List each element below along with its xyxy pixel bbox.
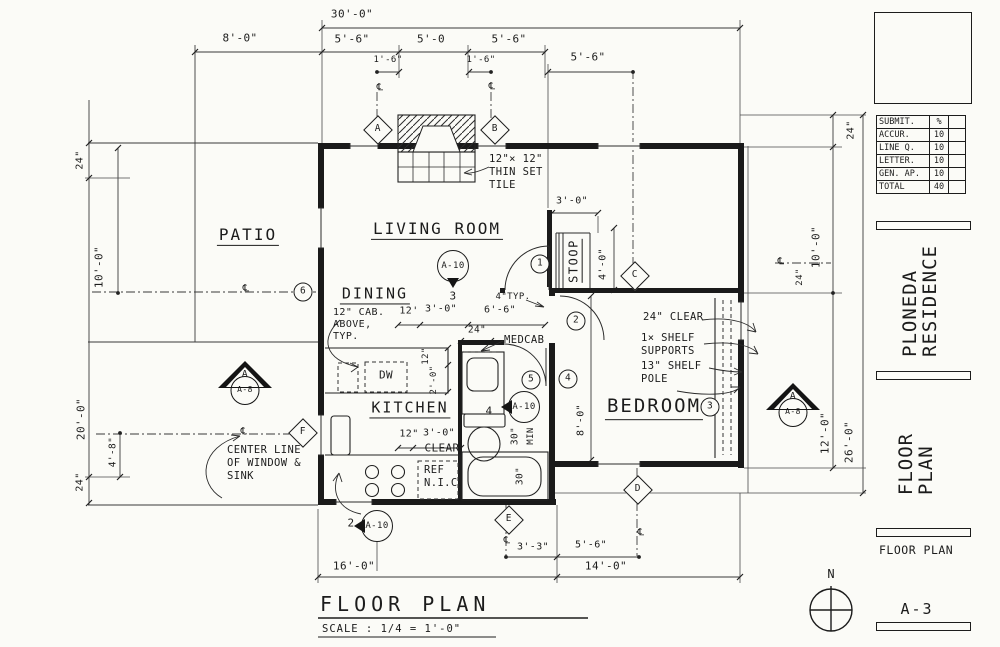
table-row: GEN. AP.10 — [877, 168, 966, 181]
detail-balloon-kitchen: A-10 — [361, 510, 393, 542]
keynote-5: 5 — [522, 371, 541, 390]
balloon-tail-icon — [447, 278, 459, 294]
dim-tub-30: 30" — [516, 467, 527, 485]
room-bedroom: BEDROOM — [605, 396, 703, 420]
section-sheet-ref: A-8 — [785, 407, 801, 416]
project-name: PLONEDA RESIDENCE — [901, 245, 941, 357]
grid-marker-c: C — [620, 261, 650, 291]
grade-label: GEN. AP. — [877, 168, 930, 181]
label-clear: CLEAR — [424, 443, 459, 456]
keynote-6: 6 — [294, 283, 313, 302]
north-label: N — [827, 567, 834, 581]
grade-value: % — [930, 116, 949, 129]
room-stoop: STOOP — [568, 239, 583, 283]
dim-dw-12: 12" — [421, 347, 431, 364]
dim-bottom-16: 16'-0" — [333, 561, 375, 574]
plan-annotations: 30'-0"8'-0"5'-6"5'-05'-6"1'-6"1'-6"5'-6"… — [0, 0, 1000, 647]
balloon-tail-icon — [347, 519, 365, 533]
note-medcab: MEDCAB — [504, 334, 544, 347]
keynote-1: 1 — [531, 255, 550, 274]
dim-win-5-6-a: 5'-6" — [334, 34, 369, 47]
dim-right-12-0: 12'-0" — [820, 412, 833, 454]
section-letter: A — [790, 391, 796, 402]
grid-marker-b: B — [480, 115, 510, 145]
note-4-typ: 4"TYP. — [496, 292, 531, 302]
centerline-sym-6: ℄ — [504, 535, 511, 546]
titleblock-divider — [876, 528, 971, 537]
keynote-2: 2 — [567, 312, 586, 331]
grade-label: ACCUR. — [877, 129, 930, 142]
note-tile: 12"× 12" THIN SET TILE — [489, 153, 543, 191]
dim-right-26-0: 26'-0" — [844, 421, 857, 463]
dim-dw-2-0: 2'-0" — [429, 365, 439, 394]
dim-left-24-bot: 24" — [74, 472, 85, 491]
detail-balloon-bath: A-10 — [508, 391, 540, 423]
grade-label: SUBMIT. — [877, 116, 930, 129]
note-24-clear: 24" CLEAR — [643, 311, 704, 324]
dim-bottom-3-3: 3'-3" — [517, 541, 549, 552]
dim-win-5-6-b: 5'-6" — [491, 34, 526, 47]
grade-value: 10 — [930, 142, 949, 155]
centerline-sym-4: ℄ — [241, 426, 248, 437]
dim-bedroom-8-0: 8'-0" — [575, 404, 586, 436]
dim-stoop-3-0: 3'-0" — [556, 195, 588, 206]
dim-6-6: 6'-6" — [484, 304, 516, 315]
centerline-sym-2: ℄ — [489, 81, 496, 92]
dim-kitchen-3-0: 3'-0" — [423, 427, 455, 438]
balloon-tail-icon — [494, 400, 512, 414]
sheet-label: FLOOR PLAN — [879, 543, 953, 557]
dim-patio-8: 8'-0" — [222, 33, 257, 46]
dim-5-6-c: 5'-6" — [570, 52, 605, 65]
grade-label: TOTAL — [877, 181, 930, 194]
section-letter: A — [242, 369, 248, 380]
label-min: MIN — [526, 427, 536, 444]
dim-right-24-mid: 24" — [795, 268, 805, 285]
dim-1-6-b: 1'-6" — [466, 55, 495, 65]
note-ref-nic: REF N.I.C. — [424, 464, 464, 490]
dim-right-10-0: 10'-0" — [811, 226, 824, 268]
room-kitchen: KITCHEN — [369, 399, 450, 418]
grade-label: LETTER. — [877, 155, 930, 168]
dim-left-4-8: 4'-8" — [109, 437, 120, 468]
dim-bottom-14: 14'-0" — [585, 561, 627, 574]
titleblock-divider — [876, 221, 971, 230]
label-dw: DW — [379, 370, 393, 383]
grade-value: 10 — [930, 168, 949, 181]
table-row: LINE Q.10 — [877, 142, 966, 155]
grid-marker-e: E — [494, 505, 524, 535]
detail-balloon-living: A-10 — [437, 250, 469, 282]
dim-left-24-top: 24" — [74, 150, 85, 169]
table-row: LETTER.10 — [877, 155, 966, 168]
dim-win-5-0: 5'-0 — [417, 34, 445, 47]
drawing-scale: SCALE : 1/4 = 1'-0" — [322, 623, 461, 635]
keynote-4: 4 — [559, 370, 578, 389]
floor-plan-sheet: 30'-0"8'-0"5'-6"5'-05'-6"1'-6"1'-6"5'-6"… — [0, 0, 1000, 647]
grade-value: 10 — [930, 129, 949, 142]
grid-marker-d: D — [623, 475, 653, 505]
section-marker-left: AA-8 — [218, 361, 272, 407]
dim-overall-30: 30'-0" — [331, 9, 373, 22]
sheet-number: A-3 — [900, 600, 933, 618]
note-cab-above: 12" CAB. ABOVE, TYP. — [333, 307, 384, 344]
centerline-sym-3: ℄ — [243, 283, 250, 294]
dim-kitchen-12: 12" — [399, 428, 418, 439]
dim-stoop-4-0: 4'-0" — [597, 248, 608, 280]
dim-dining-3-0: 3'-0" — [425, 303, 457, 314]
note-shelf-pole: 13" SHELF POLE — [641, 360, 702, 386]
dim-bottom-5-6: 5'-6" — [575, 539, 607, 550]
stamp-box — [874, 12, 972, 104]
centerline-sym-1: ℄ — [377, 82, 384, 93]
titleblock-divider — [876, 371, 971, 380]
centerline-sym-7: ℄ — [638, 527, 645, 538]
grid-marker-a: A — [363, 115, 393, 145]
dim-left-20-0: 20'-0" — [76, 398, 89, 440]
room-dining: DINING — [340, 285, 410, 304]
room-living: LIVING ROOM — [371, 220, 503, 240]
dim-left-10-0: 10'-0" — [94, 246, 107, 288]
note-shelf-supports: 1× SHELF SUPPORTS — [641, 332, 695, 358]
centerline-sym-5: ℄ — [778, 256, 785, 267]
note-center-line: CENTER LINE OF WINDOW & SINK — [227, 444, 301, 482]
dim-medcab-24: 24" — [468, 326, 486, 337]
section-sheet-ref: A-8 — [237, 385, 253, 394]
grade-label: LINE Q. — [877, 142, 930, 155]
table-row: SUBMIT.% — [877, 116, 966, 129]
section-marker-right: AA-8 — [766, 383, 820, 429]
grade-value: 40 — [930, 181, 949, 194]
sheet-title-vertical: FLOOR PLAN — [897, 433, 937, 495]
dim-right-24-top: 24" — [845, 120, 856, 139]
dim-1-6-a: 1'-6" — [373, 55, 402, 65]
keynote-3: 3 — [701, 398, 720, 417]
dim-dining-12: 12' — [399, 305, 418, 316]
dim-sink-30: 30" — [511, 427, 522, 445]
drawing-title: FLOOR PLAN — [320, 592, 490, 616]
grade-value: 10 — [930, 155, 949, 168]
detail-num-4: 4 — [485, 406, 492, 419]
table-row: TOTAL40 — [877, 181, 966, 194]
grade-table: SUBMIT.% ACCUR.10 LINE Q.10 LETTER.10 GE… — [876, 115, 966, 194]
titleblock-divider — [876, 622, 971, 631]
table-row: ACCUR.10 — [877, 129, 966, 142]
room-patio: PATIO — [217, 226, 279, 246]
